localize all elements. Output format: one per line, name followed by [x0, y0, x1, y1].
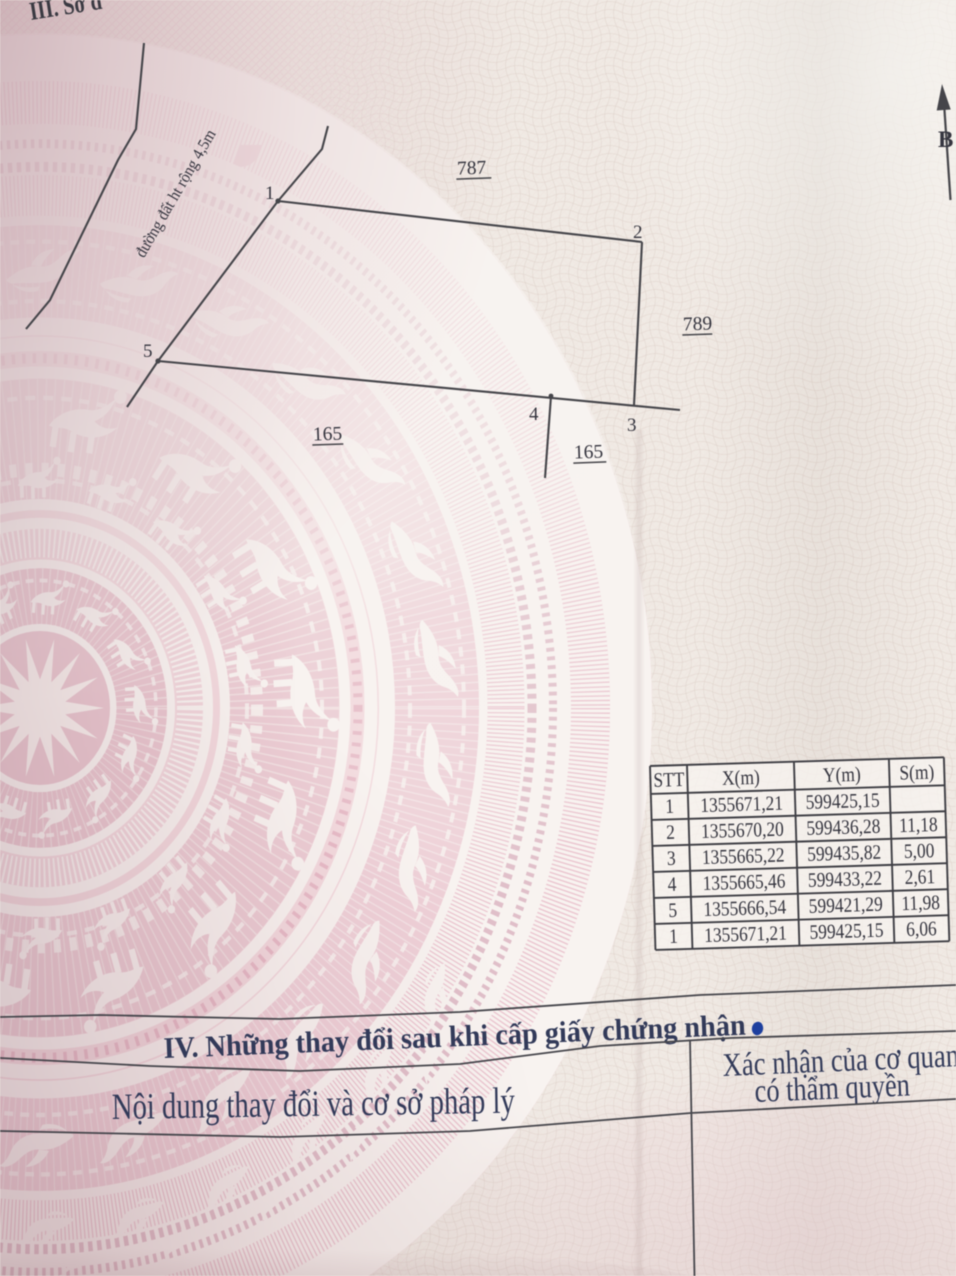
svg-text:1: 1 [265, 183, 275, 204]
svg-text:1355671,21: 1355671,21 [700, 792, 783, 817]
svg-text:599433,22: 599433,22 [808, 867, 883, 892]
svg-text:B: B [938, 127, 953, 152]
svg-text:1: 1 [665, 796, 674, 819]
svg-text:599421,29: 599421,29 [808, 893, 883, 918]
svg-text:11,18: 11,18 [899, 814, 938, 838]
svg-text:2: 2 [666, 822, 675, 845]
svg-text:599435,82: 599435,82 [807, 841, 882, 866]
svg-text:165: 165 [313, 424, 343, 446]
svg-text:1: 1 [669, 926, 678, 949]
svg-text:599425,15: 599425,15 [809, 919, 884, 944]
svg-text:2: 2 [633, 222, 643, 243]
svg-text:X(m): X(m) [722, 767, 760, 791]
svg-text:165: 165 [574, 442, 604, 464]
svg-text:S(m): S(m) [899, 761, 935, 785]
svg-text:4: 4 [529, 404, 539, 425]
svg-text:2,61: 2,61 [904, 866, 935, 890]
svg-text:789: 789 [683, 313, 713, 335]
svg-text:4: 4 [667, 874, 677, 897]
svg-text:5: 5 [143, 341, 153, 362]
svg-text:787: 787 [457, 158, 487, 180]
svg-text:1355666,54: 1355666,54 [703, 896, 787, 921]
svg-text:1355670,20: 1355670,20 [701, 818, 784, 843]
svg-text:599436,28: 599436,28 [806, 815, 881, 840]
svg-text:6,06: 6,06 [906, 918, 937, 942]
svg-text:11,98: 11,98 [901, 892, 940, 916]
svg-text:5,00: 5,00 [904, 840, 935, 864]
svg-text:3: 3 [667, 848, 676, 871]
svg-text:1355671,21: 1355671,21 [704, 922, 787, 947]
svg-text:STT: STT [653, 769, 685, 793]
svg-text:3: 3 [627, 415, 637, 436]
svg-text:Y(m): Y(m) [823, 764, 861, 788]
svg-text:1355665,46: 1355665,46 [702, 870, 785, 895]
svg-text:Nội dung thay đổi và cơ sở phá: Nội dung thay đổi và cơ sở pháp lý [112, 1081, 516, 1128]
svg-text:1355665,22: 1355665,22 [702, 844, 785, 869]
svg-text:599425,15: 599425,15 [805, 789, 880, 814]
svg-text:5: 5 [668, 900, 677, 923]
